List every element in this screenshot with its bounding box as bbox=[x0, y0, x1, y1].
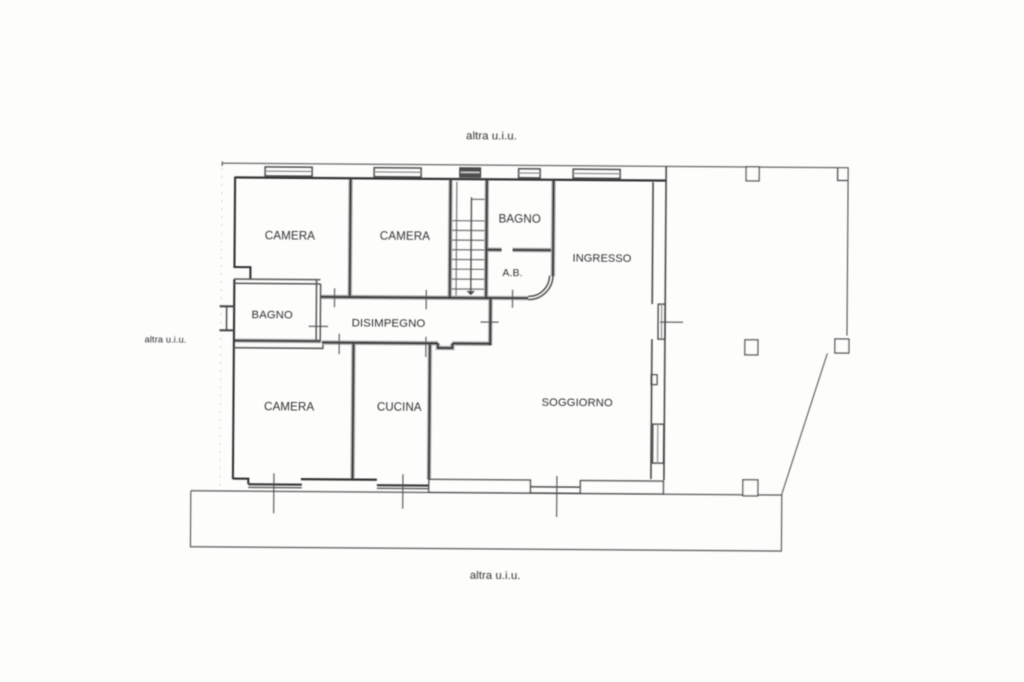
svg-text:SOGGIORNO: SOGGIORNO bbox=[542, 397, 613, 410]
svg-text:CAMERA: CAMERA bbox=[265, 229, 315, 242]
svg-text:CUCINA: CUCINA bbox=[377, 402, 422, 414]
svg-text:altra u.i.u.: altra u.i.u. bbox=[144, 335, 186, 345]
svg-text:BAGNO: BAGNO bbox=[498, 213, 540, 226]
svg-text:altra u.i.u.: altra u.i.u. bbox=[470, 570, 521, 582]
svg-text:CAMERA: CAMERA bbox=[380, 230, 430, 243]
svg-text:DISIMPEGNO: DISIMPEGNO bbox=[352, 317, 426, 330]
svg-text:A.B.: A.B. bbox=[502, 267, 522, 279]
svg-text:INGRESSO: INGRESSO bbox=[573, 252, 632, 264]
svg-text:BAGNO: BAGNO bbox=[252, 309, 294, 321]
svg-text:CAMERA: CAMERA bbox=[264, 400, 314, 413]
svg-text:altra u.i.u.: altra u.i.u. bbox=[466, 130, 517, 142]
